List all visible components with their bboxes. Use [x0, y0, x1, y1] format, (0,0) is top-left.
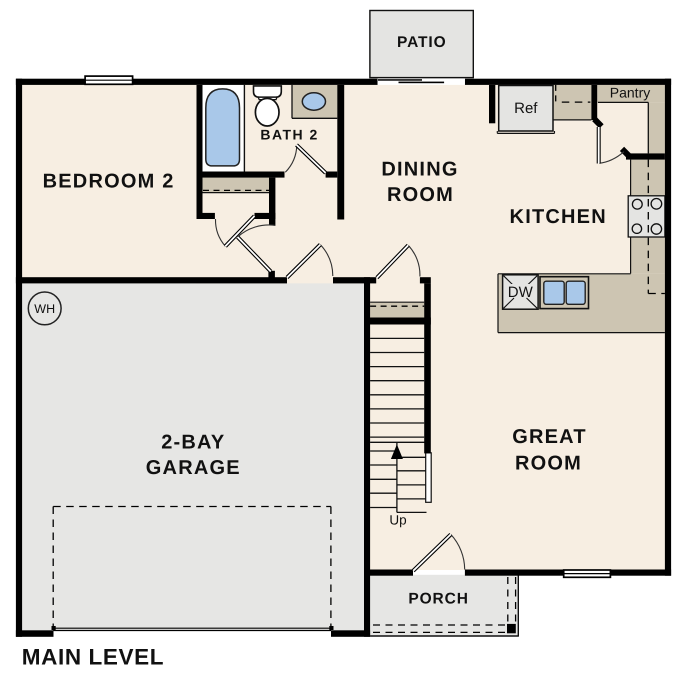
svg-text:Pantry: Pantry: [610, 84, 650, 100]
svg-text:ROOM: ROOM: [387, 184, 454, 206]
svg-text:GARAGE: GARAGE: [146, 457, 241, 479]
svg-text:DINING: DINING: [381, 159, 458, 181]
svg-text:Up: Up: [389, 513, 406, 528]
svg-text:WH: WH: [34, 302, 55, 316]
svg-text:PORCH: PORCH: [408, 591, 468, 608]
svg-text:KITCHEN: KITCHEN: [510, 206, 607, 228]
svg-text:PATIO: PATIO: [397, 34, 447, 51]
svg-text:Ref: Ref: [514, 100, 538, 117]
svg-text:GREAT: GREAT: [512, 426, 587, 448]
svg-text:BEDROOM 2: BEDROOM 2: [43, 171, 175, 193]
svg-text:DW: DW: [508, 284, 534, 301]
svg-text:ROOM: ROOM: [515, 452, 582, 474]
svg-text:BATH 2: BATH 2: [260, 127, 319, 143]
svg-text:MAIN LEVEL: MAIN LEVEL: [22, 645, 164, 670]
svg-text:2-BAY: 2-BAY: [161, 432, 225, 454]
